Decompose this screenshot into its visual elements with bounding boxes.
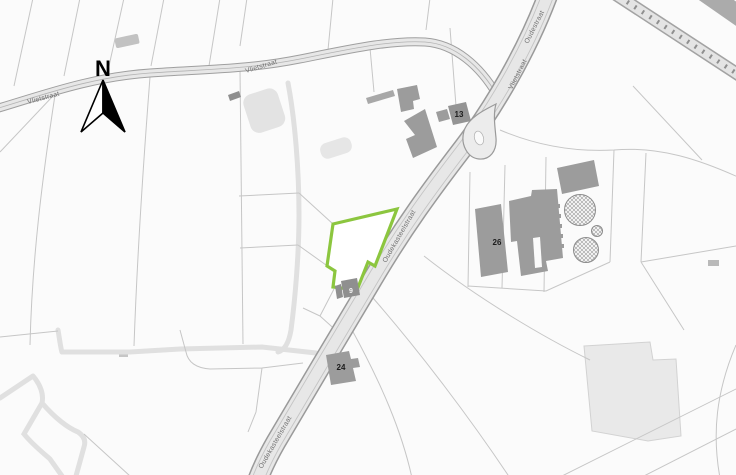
tank-circle bbox=[574, 238, 599, 263]
loading-dock bbox=[557, 214, 561, 218]
house-number-26: 26 bbox=[493, 238, 502, 247]
loading-dock bbox=[556, 204, 560, 208]
loading-dock bbox=[559, 234, 563, 238]
tank-circle bbox=[592, 226, 603, 237]
north-label: N bbox=[95, 56, 111, 81]
house-number-13: 13 bbox=[455, 110, 464, 119]
tank-circle bbox=[565, 195, 596, 226]
house-number-24: 24 bbox=[337, 363, 346, 372]
site-plan-map: Vlietstraat Vlietstraat Vlietstraat Oude… bbox=[0, 0, 736, 475]
house-number-9: 9 bbox=[349, 288, 353, 295]
map-canvas[interactable]: Vlietstraat Vlietstraat Vlietstraat Oude… bbox=[0, 0, 736, 475]
small-structure bbox=[708, 260, 719, 266]
loading-dock bbox=[558, 224, 562, 228]
loading-dock bbox=[560, 244, 564, 248]
